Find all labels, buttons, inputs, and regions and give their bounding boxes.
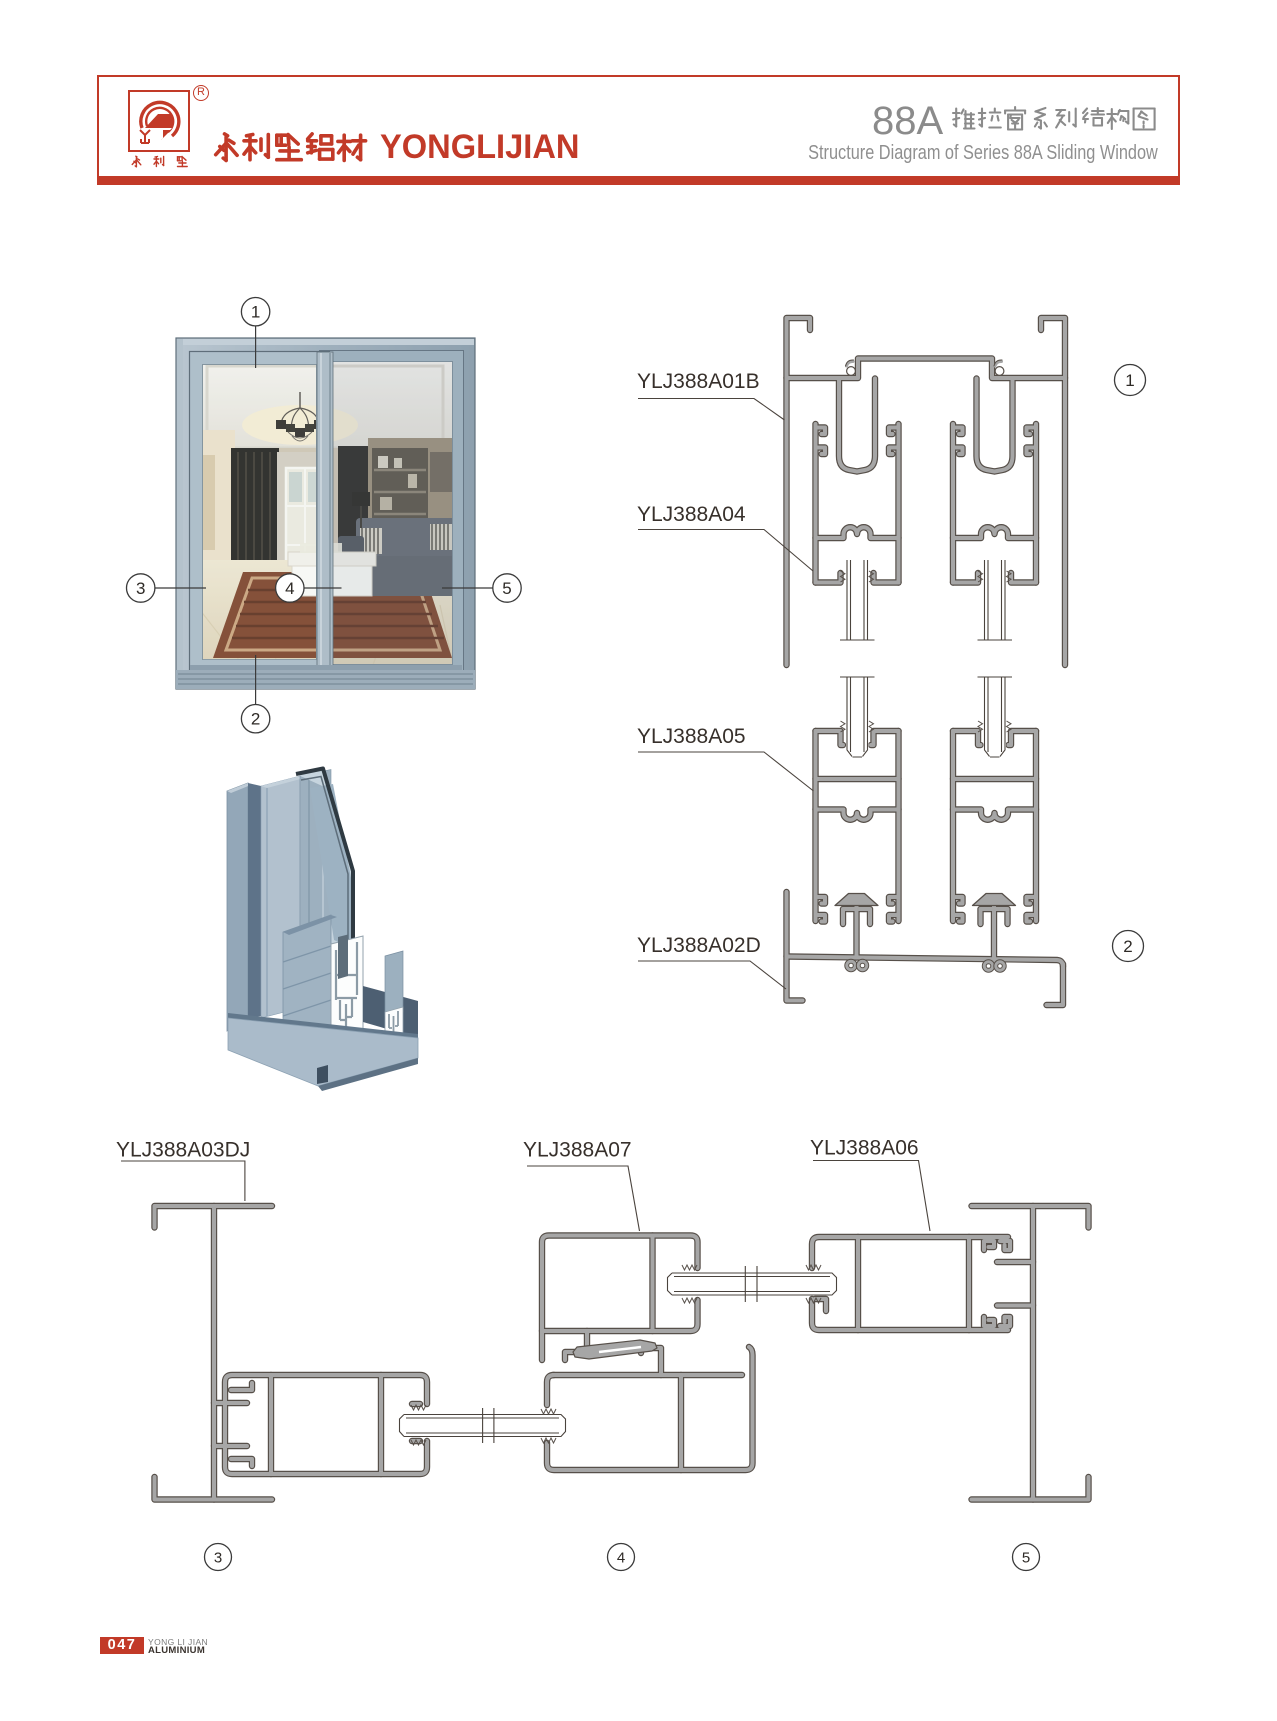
svg-text:2: 2 (251, 710, 260, 729)
svg-text:3: 3 (214, 1550, 222, 1567)
svg-text:2: 2 (1123, 937, 1132, 956)
svg-text:3: 3 (136, 579, 145, 598)
svg-text:YLJ388A01B: YLJ388A01B (637, 370, 760, 393)
svg-text:4: 4 (285, 579, 294, 598)
svg-text:5: 5 (1022, 1550, 1030, 1567)
svg-text:YLJ388A06: YLJ388A06 (810, 1137, 919, 1160)
svg-text:YLJ388A05: YLJ388A05 (637, 725, 746, 748)
svg-text:YLJ388A03DJ: YLJ388A03DJ (116, 1139, 250, 1162)
svg-text:YLJ388A02D: YLJ388A02D (637, 934, 761, 957)
svg-text:YLJ388A04: YLJ388A04 (637, 503, 746, 526)
svg-text:1: 1 (251, 303, 260, 322)
svg-text:88A: 88A (872, 103, 943, 139)
svg-text:4: 4 (617, 1550, 625, 1567)
svg-text:YLJ388A07: YLJ388A07 (523, 1139, 632, 1162)
svg-text:5: 5 (502, 579, 511, 598)
svg-text:1: 1 (1125, 371, 1134, 390)
